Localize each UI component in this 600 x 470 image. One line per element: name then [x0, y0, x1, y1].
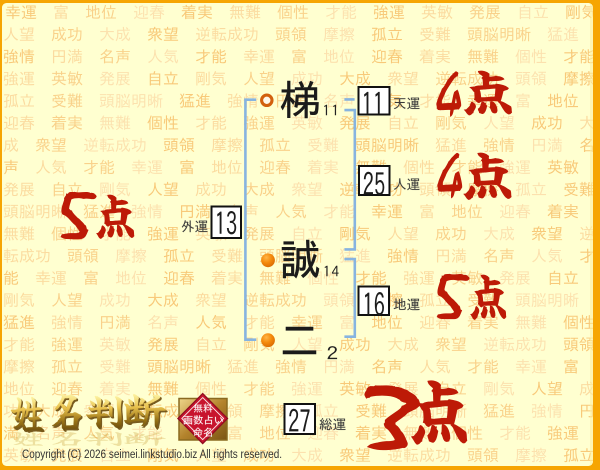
svg-text:Copyright (C) 2026 seimei.link: Copyright (C) 2026 seimei.linkstudio.biz…	[22, 447, 282, 461]
